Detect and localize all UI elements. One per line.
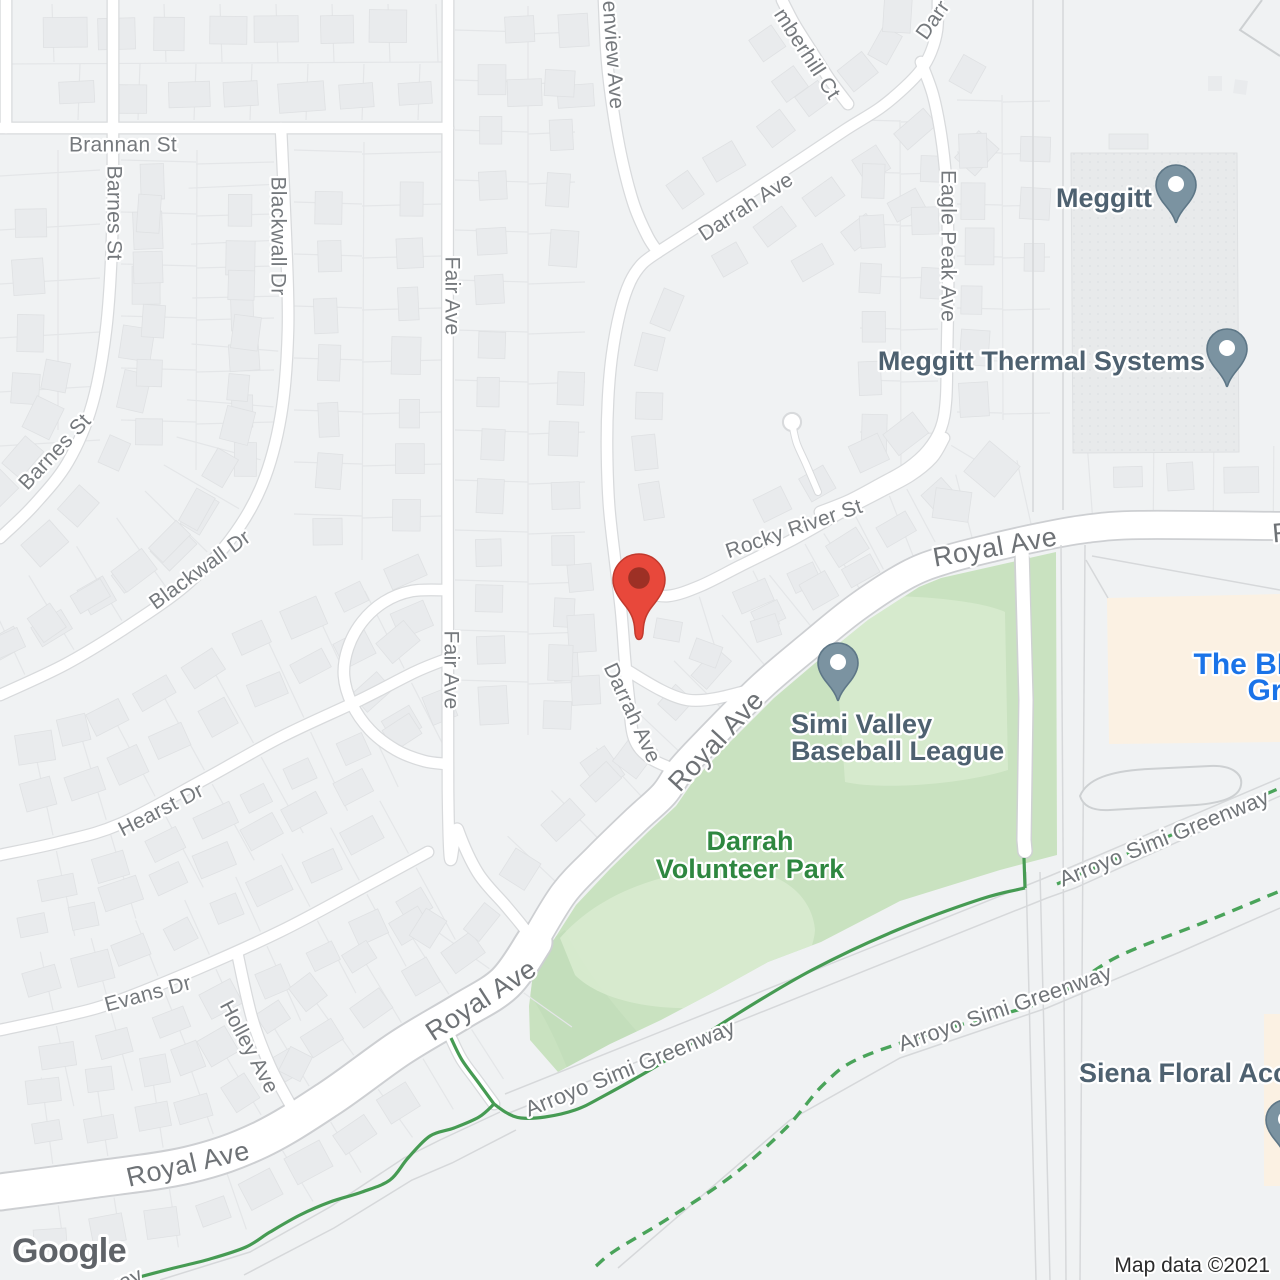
- svg-text:Darrah: Darrah: [706, 826, 793, 856]
- svg-text:Siena Floral Acc: Siena Floral Acc: [1079, 1058, 1280, 1088]
- svg-text:Simi Valley: Simi Valley: [791, 709, 932, 739]
- svg-text:Fair Ave: Fair Ave: [440, 630, 463, 709]
- svg-text:Ro: Ro: [1271, 516, 1280, 549]
- svg-text:Baseball League: Baseball League: [791, 736, 1004, 766]
- svg-text:Google: Google: [12, 1232, 126, 1270]
- svg-text:Meggitt: Meggitt: [1056, 183, 1152, 213]
- svg-text:Brannan St: Brannan St: [69, 134, 177, 157]
- svg-text:Barnes St: Barnes St: [103, 166, 126, 261]
- svg-text:Map data ©2021: Map data ©2021: [1114, 1254, 1270, 1277]
- svg-text:Eagle Peak Ave: Eagle Peak Ave: [937, 170, 960, 322]
- svg-text:Meggitt Thermal Systems: Meggitt Thermal Systems: [878, 346, 1205, 376]
- svg-text:Volunteer Park: Volunteer Park: [656, 854, 846, 884]
- svg-text:Gr: Gr: [1247, 674, 1280, 707]
- svg-text:Blackwall Dr: Blackwall Dr: [267, 176, 290, 295]
- svg-text:Fair Ave: Fair Ave: [441, 256, 464, 335]
